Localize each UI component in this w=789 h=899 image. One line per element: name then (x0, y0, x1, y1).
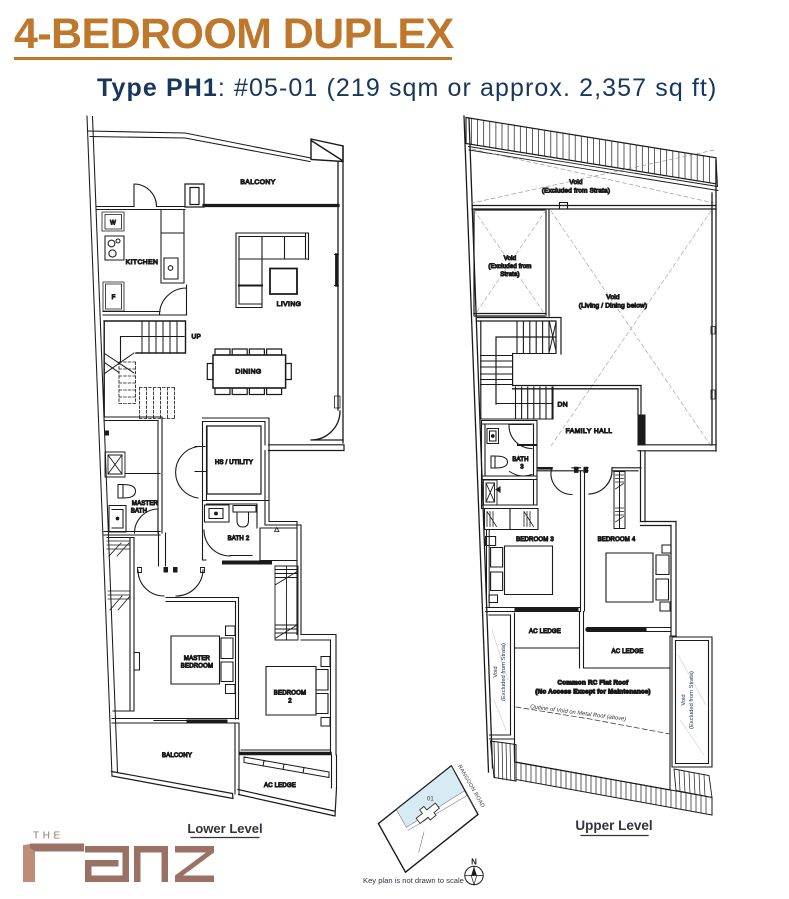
svg-text:BATH: BATH (512, 457, 528, 463)
svg-text:BEDROOM 3: BEDROOM 3 (516, 537, 554, 543)
svg-text:(Living / Dining below): (Living / Dining below) (579, 303, 648, 310)
svg-text:Void: Void (606, 294, 620, 301)
svg-text:BEDROOM 4: BEDROOM 4 (598, 537, 636, 543)
svg-text:BEDROOM: BEDROOM (274, 691, 306, 697)
svg-text:MASTER: MASTER (132, 501, 159, 507)
svg-text:FAMILY HALL: FAMILY HALL (566, 428, 613, 435)
svg-text:Common RC Flat Roof: Common RC Flat Roof (558, 680, 630, 687)
svg-text:(Excluded from Strata): (Excluded from Strata) (689, 671, 695, 729)
svg-text:Key plan is not drawn to scale: Key plan is not drawn to scale (363, 876, 464, 885)
svg-text:Void: Void (504, 256, 516, 262)
svg-text:Void: Void (493, 666, 499, 677)
svg-text:N: N (471, 858, 477, 867)
svg-text:BATH 2: BATH 2 (228, 536, 250, 542)
svg-text:THE: THE (33, 831, 64, 842)
svg-text:BALCONY: BALCONY (240, 179, 275, 186)
svg-text:Strata): Strata) (500, 272, 519, 278)
svg-text:01: 01 (427, 797, 434, 803)
svg-text:(Excluded from Strata): (Excluded from Strata) (542, 188, 610, 195)
svg-text:BEDROOM: BEDROOM (181, 664, 213, 670)
svg-text:Lower Level: Lower Level (187, 821, 262, 836)
svg-text:MASTER: MASTER (184, 656, 211, 662)
svg-text:(Excluded from Strata): (Excluded from Strata) (501, 643, 507, 701)
svg-text:LIVING: LIVING (277, 301, 302, 308)
svg-text:AC LEDGE: AC LEDGE (612, 649, 644, 655)
svg-text:W: W (110, 221, 116, 227)
svg-text:AC LEDGE: AC LEDGE (264, 783, 296, 789)
svg-text:(Excluded from: (Excluded from (488, 264, 531, 270)
svg-text:3: 3 (520, 465, 524, 471)
svg-text:Outline of Void on Metal Roof: Outline of Void on Metal Roof (above) (530, 704, 627, 723)
svg-text:(No Access Except for Maintena: (No Access Except for Maintenance) (535, 689, 650, 696)
svg-text:Void: Void (681, 694, 687, 705)
svg-text:DN: DN (558, 402, 569, 409)
svg-text:BALCONY: BALCONY (162, 753, 192, 759)
svg-text:HS / UTILITY: HS / UTILITY (215, 460, 253, 466)
svg-text:Upper Level: Upper Level (575, 818, 652, 833)
svg-text:Void: Void (569, 179, 582, 186)
svg-text:2: 2 (288, 699, 292, 705)
svg-text:UP: UP (192, 334, 202, 341)
svg-text:F: F (112, 295, 116, 301)
svg-text:KITCHEN: KITCHEN (126, 259, 159, 266)
svg-text:AC LEDGE: AC LEDGE (529, 629, 561, 635)
svg-text:DINING: DINING (235, 369, 261, 376)
